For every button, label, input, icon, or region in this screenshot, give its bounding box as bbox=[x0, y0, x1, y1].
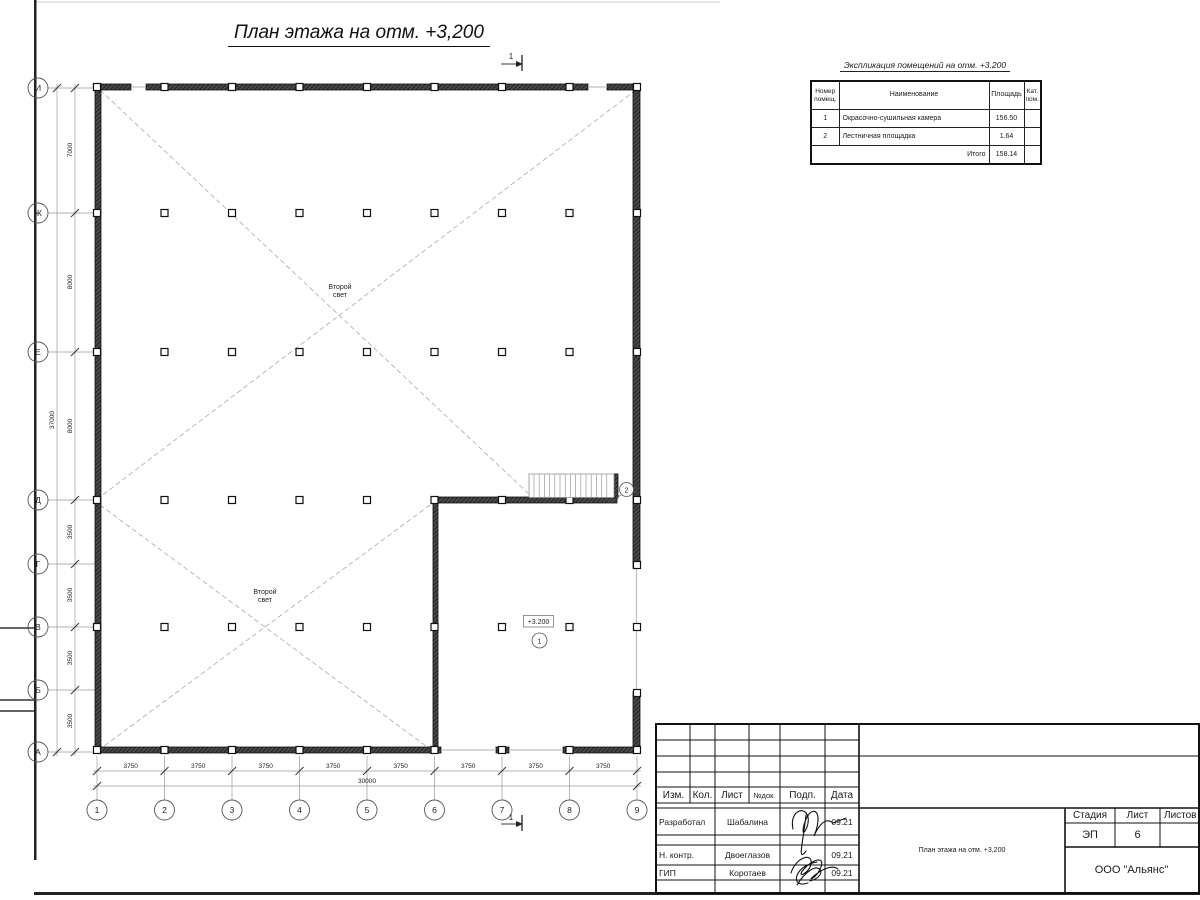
column bbox=[566, 747, 573, 754]
dim-label: 8000 bbox=[67, 418, 74, 433]
column bbox=[229, 349, 236, 356]
column bbox=[566, 624, 573, 631]
sheet-frame bbox=[0, 0, 720, 860]
table-header-row: Номерпомещ. Наименование Площадь Кат.пом… bbox=[811, 81, 1041, 110]
dim-label: 3750 bbox=[123, 763, 138, 770]
tb-role: Разработал bbox=[659, 808, 713, 835]
column bbox=[634, 210, 641, 217]
column bbox=[431, 84, 438, 91]
dim-label: 3500 bbox=[67, 713, 74, 728]
axis-label: 6 bbox=[432, 805, 437, 815]
dim-label: 3750 bbox=[191, 763, 206, 770]
tb-name: Шабалина bbox=[715, 808, 780, 835]
column bbox=[296, 210, 303, 217]
axis-label: Ж bbox=[34, 208, 42, 218]
axis-label: 7 bbox=[500, 805, 505, 815]
tb-name: Коротаев bbox=[715, 865, 780, 880]
col-header-number: Номерпомещ. bbox=[811, 81, 839, 110]
column bbox=[161, 747, 168, 754]
drawing-title: План этажа на отм. +3,200 bbox=[228, 22, 490, 47]
tb-sheet-value: 6 bbox=[1115, 823, 1160, 847]
axis-label: 9 bbox=[635, 805, 640, 815]
walls bbox=[95, 84, 640, 753]
column bbox=[499, 747, 506, 754]
tb-sheet-label: Лист bbox=[1115, 808, 1160, 823]
column bbox=[634, 624, 641, 631]
column bbox=[634, 349, 641, 356]
column bbox=[566, 210, 573, 217]
section-mark-top: 1 bbox=[501, 52, 523, 71]
tb-date: 09.21 bbox=[825, 865, 859, 880]
total-label: Итого bbox=[811, 146, 989, 165]
dim-total-label: 37000 bbox=[49, 411, 56, 429]
col-header-area: Площадь bbox=[989, 81, 1024, 110]
column bbox=[364, 497, 371, 504]
total-cat bbox=[1024, 146, 1041, 165]
tb-col-kol: Кол. bbox=[690, 787, 715, 803]
room-num: 2 bbox=[811, 128, 839, 146]
elevation-mark: +3.200 bbox=[528, 619, 550, 626]
column bbox=[94, 210, 101, 217]
dimension-labels: 7000 8000 8000 3500 3500 3500 3500 37000… bbox=[49, 142, 611, 785]
table-row: 1 Окрасочно-сушильная камера 156.50 bbox=[811, 110, 1041, 128]
second-light-label: свет bbox=[333, 292, 348, 299]
room-cat bbox=[1024, 128, 1041, 146]
column bbox=[499, 349, 506, 356]
column bbox=[229, 624, 236, 631]
column bbox=[499, 210, 506, 217]
second-light-label: Второй bbox=[328, 283, 351, 291]
column bbox=[229, 84, 236, 91]
room-name: Лестничная площадка bbox=[839, 128, 989, 146]
tb-doc-title: План этажа на отм. +3,200 bbox=[859, 808, 1065, 892]
axis-label: Д bbox=[35, 495, 41, 505]
dim-label: 3750 bbox=[258, 763, 273, 770]
column bbox=[161, 210, 168, 217]
column bbox=[364, 349, 371, 356]
tb-col-list: Лист bbox=[715, 787, 749, 803]
tb-date: 09.21 bbox=[825, 845, 859, 865]
room-number: 2 bbox=[625, 488, 629, 495]
title-block: Изм. Кол. Лист №док. Подп. Дата Разработ… bbox=[655, 723, 1200, 894]
second-light-label: свет bbox=[258, 597, 273, 604]
axis-label: 1 bbox=[95, 805, 100, 815]
svg-text:1: 1 bbox=[509, 813, 514, 822]
dim-label: 3750 bbox=[461, 763, 476, 770]
axis-label: 4 bbox=[297, 805, 302, 815]
column bbox=[431, 747, 438, 754]
dim-label: 3750 bbox=[393, 763, 408, 770]
column bbox=[161, 497, 168, 504]
tb-col-podp: Подп. bbox=[780, 787, 825, 803]
column bbox=[296, 624, 303, 631]
column bbox=[634, 562, 641, 569]
dim-label: 3500 bbox=[67, 650, 74, 665]
room-name: Окрасочно-сушильная камера bbox=[839, 110, 989, 128]
dim-label: 3500 bbox=[67, 587, 74, 602]
bottom-wall bbox=[95, 747, 441, 753]
column bbox=[431, 349, 438, 356]
dim-label: 3750 bbox=[596, 763, 611, 770]
col-header-category: Кат.пом. bbox=[1024, 81, 1041, 110]
axis-label: 5 bbox=[365, 805, 370, 815]
column bbox=[94, 84, 101, 91]
column bbox=[161, 84, 168, 91]
column bbox=[364, 210, 371, 217]
tb-col-data: Дата bbox=[825, 787, 859, 803]
column bbox=[296, 747, 303, 754]
room-area: 1.64 bbox=[989, 128, 1024, 146]
column bbox=[431, 497, 438, 504]
column bbox=[94, 624, 101, 631]
axis-bubble-labels: И Ж Е Д Г В Б А 1 2 3 4 5 6 7 8 9 bbox=[34, 83, 640, 815]
dim-label: 3750 bbox=[528, 763, 543, 770]
column bbox=[499, 84, 506, 91]
axis-label: А bbox=[35, 747, 41, 757]
dimension-ticks bbox=[53, 84, 641, 790]
dimension-lines: 7000 8000 8000 3500 3500 3500 3500 37000… bbox=[49, 84, 641, 790]
explication-block: Экспликация помещений на отм. +3.200 Ном… bbox=[796, 60, 1054, 165]
second-light-diagonals bbox=[100, 90, 636, 749]
column bbox=[566, 84, 573, 91]
columns bbox=[94, 84, 641, 754]
svg-text:1: 1 bbox=[509, 52, 514, 61]
column bbox=[364, 747, 371, 754]
column bbox=[634, 690, 641, 697]
floor-plan-drawing: 7000 8000 8000 3500 3500 3500 3500 37000… bbox=[0, 0, 720, 860]
axis-label: 3 bbox=[230, 805, 235, 815]
column bbox=[161, 349, 168, 356]
column bbox=[296, 349, 303, 356]
right-wall bbox=[633, 692, 640, 753]
column bbox=[94, 497, 101, 504]
column bbox=[431, 624, 438, 631]
column bbox=[634, 84, 641, 91]
section-mark-bottom: 1 bbox=[501, 813, 523, 831]
dim-label: 3750 bbox=[326, 763, 341, 770]
second-light-label: Второй bbox=[253, 588, 276, 596]
column bbox=[499, 624, 506, 631]
tb-role: Н. контр. bbox=[659, 845, 713, 865]
axis-label: В bbox=[35, 622, 41, 632]
explication-table: Номерпомещ. Наименование Площадь Кат.пом… bbox=[810, 80, 1042, 165]
stairs bbox=[529, 474, 614, 498]
axis-label: И bbox=[35, 83, 41, 93]
tb-col-izm: Изм. bbox=[657, 787, 690, 803]
explication-title: Экспликация помещений на отм. +3.200 bbox=[840, 60, 1010, 72]
tb-date: 09.21 bbox=[825, 808, 859, 835]
column bbox=[296, 497, 303, 504]
tb-stage-value: ЭП bbox=[1065, 823, 1115, 847]
room-number: 1 bbox=[538, 639, 542, 646]
room-area: 156.50 bbox=[989, 110, 1024, 128]
column bbox=[364, 84, 371, 91]
col-header-name: Наименование bbox=[839, 81, 989, 110]
tb-stage-label: Стадия bbox=[1065, 808, 1115, 823]
column bbox=[634, 497, 641, 504]
stair-side-wall bbox=[614, 474, 618, 498]
interior-wall-horizontal bbox=[433, 497, 617, 503]
tb-name: Двоеглазов bbox=[715, 845, 780, 865]
total-area: 158.14 bbox=[989, 146, 1024, 165]
column bbox=[229, 210, 236, 217]
dim-total-label: 30000 bbox=[358, 778, 376, 785]
tb-sheets-label: Листов bbox=[1160, 808, 1200, 823]
axis-label: 2 bbox=[162, 805, 167, 815]
column bbox=[634, 747, 641, 754]
column bbox=[431, 210, 438, 217]
column bbox=[161, 624, 168, 631]
axis-bubbles bbox=[28, 78, 647, 820]
dim-label: 8000 bbox=[67, 274, 74, 289]
tb-role: ГИП bbox=[659, 865, 713, 880]
drawing-sheet: { "title": "План этажа на отм. +3,200", … bbox=[0, 0, 1200, 900]
axis-label: Е bbox=[35, 347, 41, 357]
column bbox=[94, 349, 101, 356]
dim-label: 3500 bbox=[67, 524, 74, 539]
axis-label: Б bbox=[35, 685, 41, 695]
left-wall bbox=[95, 84, 101, 753]
column bbox=[296, 84, 303, 91]
tb-company: ООО "Альянс" bbox=[1065, 847, 1198, 892]
wall-openings bbox=[131, 87, 637, 750]
column bbox=[364, 624, 371, 631]
table-total-row: Итого 158.14 bbox=[811, 146, 1041, 165]
room-num: 1 bbox=[811, 110, 839, 128]
axis-label: 8 bbox=[567, 805, 572, 815]
bottom-wall bbox=[563, 747, 640, 753]
axis-label: Г bbox=[36, 559, 41, 569]
axis-grid-lines bbox=[48, 88, 637, 800]
dim-label: 7000 bbox=[67, 142, 74, 157]
right-wall bbox=[633, 84, 640, 568]
column bbox=[566, 349, 573, 356]
tb-col-ndok: №док. bbox=[749, 787, 780, 803]
column bbox=[229, 497, 236, 504]
column bbox=[94, 747, 101, 754]
table-row: 2 Лестничная площадка 1.64 bbox=[811, 128, 1041, 146]
column bbox=[499, 497, 506, 504]
column bbox=[229, 747, 236, 754]
room-cat bbox=[1024, 110, 1041, 128]
